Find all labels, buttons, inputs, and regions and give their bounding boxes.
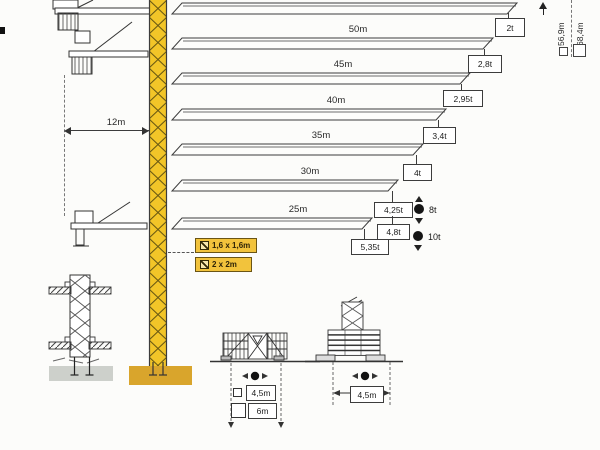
tower-section-tag: 1,6 x 1,6m <box>195 238 257 253</box>
max-load-label: 10t <box>428 232 441 242</box>
jib-shape <box>172 179 399 192</box>
arrow-left-icon <box>64 127 71 135</box>
jib-length-label: 45m <box>321 59 365 70</box>
tower-section-label: 1,6 x 1,6m <box>212 241 250 250</box>
tip-load-box: 2,8t <box>468 55 502 73</box>
crane-diagram-page: 12m 2t 50m 2,8t 45m 2,95t 40m 3,4t 35m 4… <box>0 0 600 450</box>
base-foot <box>274 356 284 360</box>
tower-lattice <box>342 302 363 330</box>
checked-box-icon <box>200 241 209 250</box>
tower-section-label: 2 x 2m <box>212 260 237 269</box>
down-arrow-icon <box>414 245 422 251</box>
jib-shape <box>172 108 447 121</box>
break-marks <box>53 358 99 363</box>
tie-bar <box>98 202 130 223</box>
tip-load-box: 4t <box>403 164 432 181</box>
counterweight <box>58 13 78 30</box>
tip-load-box: 4,8t <box>377 224 410 240</box>
hook-height-label: 68,4m <box>575 10 585 46</box>
tie-bar <box>77 0 93 8</box>
tie-bar <box>93 22 132 52</box>
pendant-line <box>392 216 393 224</box>
base-width-box: 6m <box>248 403 277 419</box>
down-arrow-icon <box>278 422 284 428</box>
jib-length-label: 40m <box>314 95 358 106</box>
jib-shape <box>172 143 424 156</box>
jib-length-label: 35m <box>299 130 343 141</box>
max-load-label: 8t <box>429 205 437 215</box>
arrow-right-icon <box>383 390 390 396</box>
arrow-right-icon <box>372 373 378 379</box>
black-dot-icon <box>414 204 424 214</box>
tip-load-box: 2,95t <box>443 90 483 107</box>
base-pad <box>316 355 335 361</box>
ballast-slab-stack <box>328 330 380 355</box>
tip-load-box: 3,4t <box>423 127 456 144</box>
cab <box>75 211 93 223</box>
base-foot <box>221 356 231 360</box>
tag-connector-line <box>168 252 194 253</box>
counter-radius-label: 12m <box>94 117 138 128</box>
up-arrow-icon <box>415 196 423 202</box>
jib-length-label: 50m <box>336 24 380 35</box>
jib-length-label: 25m <box>276 204 320 215</box>
counter-jib-assembly <box>71 202 147 246</box>
base-width-box: 4,5m <box>246 385 276 401</box>
support-leg <box>76 229 84 245</box>
tip-load-box: 5,35t <box>351 239 389 255</box>
down-arrow-icon <box>228 422 234 428</box>
arrow-right-icon <box>262 373 268 379</box>
up-arrow-icon <box>539 2 547 9</box>
tower-section-tag: 2 x 2m <box>195 257 252 272</box>
base-width-box: 4,5m <box>350 386 384 403</box>
pendant-line <box>416 155 417 164</box>
counter-jib-deck <box>69 51 148 57</box>
counter-radius-reference-line <box>64 75 65 216</box>
tip-load-box: 2t <box>495 18 525 37</box>
pendant-line <box>438 120 439 127</box>
counter-jib-assembly <box>69 22 148 74</box>
pendant-line <box>364 229 365 239</box>
hook-height-label: 56,9m <box>556 10 566 46</box>
ballast-block <box>223 333 248 359</box>
tower-mast <box>148 0 168 366</box>
center-pivot-icon <box>361 372 369 380</box>
mast-anchor-posts <box>148 358 170 380</box>
ballast-block <box>267 333 287 359</box>
jib-shape <box>172 217 373 230</box>
cab <box>75 31 90 43</box>
black-dot-icon <box>413 231 423 241</box>
counter-jib-assembly <box>53 0 153 30</box>
arrow-left-icon <box>333 390 340 396</box>
height-arrow-stub <box>543 9 544 15</box>
small-square-icon <box>559 47 568 56</box>
down-arrow-icon <box>415 218 423 224</box>
center-pivot-icon <box>251 372 259 380</box>
base-pad <box>366 355 385 361</box>
arrow-left-icon <box>352 373 358 379</box>
large-square-icon <box>573 44 586 57</box>
arrow-left-icon <box>242 373 248 379</box>
jib-shape <box>172 2 518 15</box>
dimension-line-12m <box>66 130 149 131</box>
counterweight <box>72 57 92 74</box>
anchored-tower-figure <box>45 275 120 385</box>
height-reference-line <box>571 0 572 57</box>
counter-jib-deck <box>71 223 147 229</box>
pendant-line <box>392 191 393 202</box>
concrete-foundation <box>49 366 113 381</box>
left-edge-mark <box>0 27 5 34</box>
tip-load-box: 4,25t <box>374 202 413 218</box>
checked-box-icon <box>200 260 209 269</box>
large-square-icon <box>231 403 246 418</box>
jib-shape <box>172 37 494 50</box>
jib-shape <box>172 72 471 85</box>
small-square-icon <box>233 388 242 397</box>
jib-length-label: 30m <box>288 166 332 177</box>
